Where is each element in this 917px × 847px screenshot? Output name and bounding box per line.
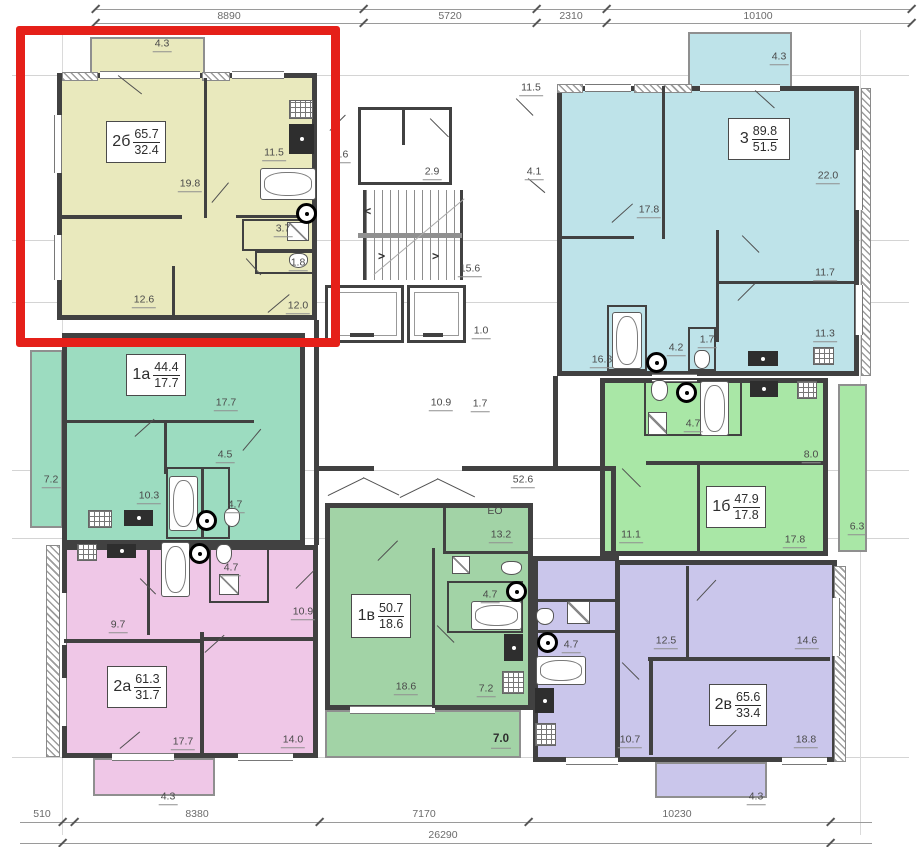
stair-direction-arrow: >	[432, 250, 439, 262]
room-area-label: 4.3	[747, 791, 766, 805]
room-area-label: 12.5	[654, 635, 678, 649]
room-area-label: 14.6	[795, 635, 819, 649]
apartment-type: 3	[740, 130, 749, 148]
stair-direction-arrow: <	[364, 205, 371, 217]
window	[59, 593, 67, 645]
vent-icon	[196, 510, 217, 531]
room-area-label: 16.8	[590, 354, 614, 368]
room-area-label: 10.9	[291, 606, 315, 620]
wall	[164, 422, 167, 474]
room-area-label: 11.3	[813, 328, 837, 342]
total-area: 61.3	[134, 672, 160, 687]
window	[832, 598, 840, 656]
stove-icon	[813, 347, 834, 365]
hatched-wall	[834, 566, 846, 762]
room-area-label: 6.3	[848, 521, 867, 535]
entrance-canopy	[437, 478, 475, 498]
room-area-label: 15.6	[458, 263, 482, 277]
room-area-label: 1.0	[472, 325, 491, 339]
window	[855, 150, 863, 210]
bathtub-icon	[700, 381, 729, 436]
room-area-label: 10.3	[137, 490, 161, 504]
room-area-label: 14.0	[281, 734, 305, 748]
room-area-label: 4.7	[562, 639, 581, 653]
sink-icon	[748, 351, 778, 366]
selection-highlight	[16, 26, 340, 347]
sink-icon	[504, 634, 523, 661]
dimension-label: 510	[30, 808, 54, 820]
vent-icon	[646, 352, 667, 373]
window	[855, 285, 863, 335]
room-area-label: 52.6	[511, 474, 535, 488]
balcony-2a	[93, 758, 215, 796]
wall	[64, 639, 201, 643]
stair-landing	[358, 233, 462, 238]
room-area-label: 17.8	[783, 534, 807, 548]
elevator-door	[423, 333, 443, 337]
sink-icon	[124, 510, 153, 526]
toilet-icon	[536, 608, 554, 625]
bathtub-icon	[471, 601, 522, 630]
stove-icon	[88, 510, 112, 528]
room-area-label: 22.0	[816, 170, 840, 184]
room-area-label: 18.8	[794, 734, 818, 748]
toilet-icon	[501, 561, 522, 575]
window	[585, 84, 631, 92]
dimension-label: 2310	[556, 10, 585, 22]
room-area-label: 10.7	[618, 734, 642, 748]
room-area-label: 18.6	[394, 681, 418, 695]
apartment-label-1v: 1в 50.718.6	[351, 594, 411, 638]
hatched-wall	[557, 84, 583, 93]
dimension-line	[20, 843, 872, 844]
stove-icon	[77, 544, 97, 561]
wall	[716, 230, 719, 342]
living-area: 17.8	[734, 508, 758, 522]
dimension-label: 10100	[740, 10, 775, 22]
dimension-line	[20, 822, 872, 823]
room-area-label: 9.7	[109, 619, 128, 633]
room-area-label: 4.7	[226, 499, 245, 513]
wall	[314, 466, 374, 471]
floor-plan: 8890 5720 2310 10100 510 8380 7170 10230…	[0, 0, 917, 847]
window	[238, 753, 293, 761]
room-area-label: 11.7	[813, 267, 837, 281]
total-area: 50.7	[378, 601, 404, 616]
total-area: 47.9	[733, 492, 759, 507]
bathtub-icon	[169, 476, 198, 531]
bathtub-icon	[536, 656, 586, 685]
window	[350, 706, 435, 714]
living-area: 18.6	[379, 617, 403, 631]
apartment-type: 2в	[715, 696, 732, 714]
window	[782, 757, 827, 765]
wall	[200, 632, 204, 757]
window	[566, 757, 618, 765]
dimension-label: 8890	[214, 10, 243, 22]
hatched-wall	[46, 545, 60, 757]
living-area: 33.4	[736, 706, 760, 720]
wall	[611, 466, 616, 556]
wall	[646, 461, 824, 465]
shower-icon	[567, 601, 590, 624]
toilet-icon	[694, 350, 710, 369]
living-area: 51.5	[753, 140, 777, 154]
wall	[560, 236, 634, 239]
room-area-label: 7.2	[477, 683, 496, 697]
entrance-canopy	[400, 479, 438, 499]
room-area-label: 11.1	[619, 529, 643, 543]
room-area-label: 4.7	[684, 418, 703, 432]
shower-icon	[219, 574, 239, 595]
dimension-tick	[907, 4, 916, 13]
balcony-1a	[30, 350, 63, 528]
wall	[697, 463, 700, 556]
apartment-type: 1б	[712, 498, 730, 516]
room-area-label: 17.7	[171, 736, 195, 750]
wall	[443, 505, 446, 554]
dimension-label: 8380	[182, 808, 211, 820]
door-swing	[528, 178, 546, 193]
apartment-label-2a: 2а 61.331.7	[107, 666, 167, 708]
wall	[553, 376, 558, 468]
stove-icon	[797, 381, 817, 399]
living-area: 17.7	[154, 376, 178, 390]
wall	[462, 466, 616, 471]
entrance-canopy	[363, 477, 400, 496]
room-area-label: 8.0	[802, 449, 821, 463]
room-area-label: 4.7	[481, 589, 500, 603]
living-area: 31.7	[135, 688, 159, 702]
dimension-label: 10230	[659, 808, 694, 820]
room-area-label: 17.7	[214, 397, 238, 411]
wall	[648, 657, 830, 661]
apartment-type: 1а	[132, 366, 150, 384]
wall	[402, 107, 405, 145]
dimension-label: 7170	[409, 808, 438, 820]
room-area-label: 11.5	[519, 82, 543, 96]
door-swing	[516, 98, 534, 116]
dimension-label-total: 26290	[425, 829, 460, 841]
bathtub-icon	[612, 312, 642, 369]
total-area: 65.6	[735, 690, 761, 705]
wall	[649, 659, 653, 755]
bathtub-icon	[161, 542, 190, 597]
apartment-type: 2а	[113, 678, 131, 696]
window	[59, 678, 67, 726]
room-area-label: 7.0	[491, 734, 511, 749]
apartment-type: 1в	[358, 607, 375, 625]
vent-icon	[537, 632, 558, 653]
elevator-door	[350, 333, 374, 337]
room-area-label: 4.2	[667, 342, 686, 356]
wall	[445, 551, 533, 554]
room-area-label: 7.2	[42, 474, 61, 488]
vent-icon	[506, 581, 527, 602]
sink-icon	[535, 688, 554, 713]
shower-icon	[648, 412, 667, 435]
total-area: 44.4	[153, 360, 179, 375]
stair-direction-arrow: >	[378, 250, 385, 262]
room-area-label: 4.7	[222, 562, 241, 576]
wall	[686, 566, 689, 660]
dimension-label: 5720	[435, 10, 464, 22]
stove-icon	[502, 671, 524, 694]
room-area-label: 2.9	[423, 166, 442, 180]
wall	[62, 420, 254, 423]
shower-icon	[452, 556, 470, 574]
room-area-label: 13.2	[489, 529, 513, 543]
wall	[314, 320, 319, 545]
apartment-2a[interactable]	[62, 545, 318, 758]
dimension-line	[95, 23, 911, 24]
window	[112, 753, 174, 761]
wall	[662, 86, 665, 239]
vent-icon	[676, 382, 697, 403]
sink-icon	[750, 381, 778, 397]
room-area-label: 10.9	[429, 397, 453, 411]
room-area-label: 1.7	[471, 398, 490, 412]
dimension-tick	[907, 18, 916, 27]
room-area-label: 4.3	[770, 51, 789, 65]
entrance-canopy	[328, 478, 365, 497]
room-area-label: 4.1	[525, 166, 544, 180]
apartment-label-1b: 1б 47.917.8	[706, 486, 766, 528]
room-area-label: 4.5	[216, 449, 235, 463]
stove-icon	[535, 723, 556, 746]
room-note-label: ЕО	[485, 506, 504, 519]
room-area-label: 4.3	[159, 791, 178, 805]
wall	[716, 281, 859, 284]
room-area-label: 17.8	[637, 204, 661, 218]
window	[700, 84, 780, 92]
sink-icon	[107, 544, 136, 558]
wall	[432, 548, 435, 708]
vent-icon	[189, 543, 210, 564]
apartment-label-1a: 1а 44.417.7	[126, 354, 186, 396]
apartment-label-3: 3 89.851.5	[728, 118, 790, 160]
room-area-label: 1.7	[698, 334, 717, 348]
total-area: 89.8	[752, 124, 778, 139]
apartment-label-2v: 2в 65.633.4	[709, 684, 767, 726]
toilet-icon	[651, 380, 668, 401]
